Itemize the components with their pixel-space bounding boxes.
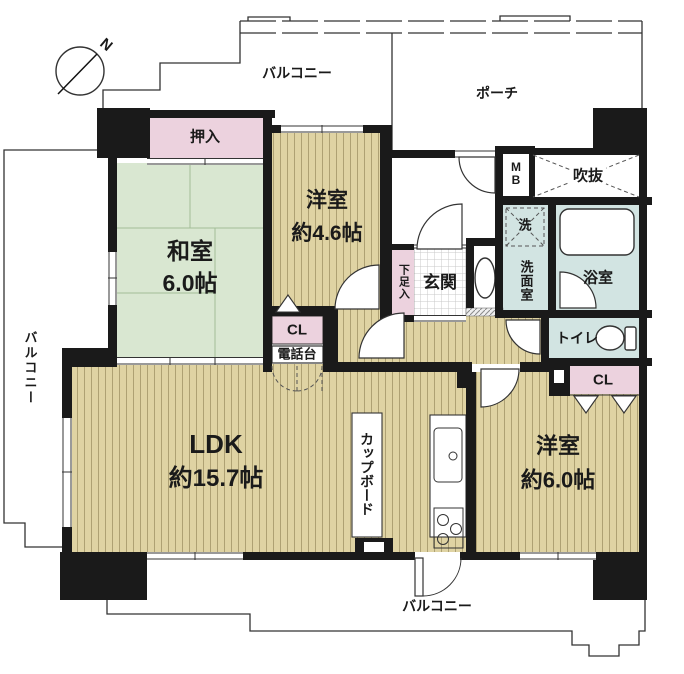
yoshitsu46-name-label: 洋室 <box>306 189 348 213</box>
closet-a-label: CL <box>287 321 307 338</box>
meter-box-label-b: B <box>512 174 521 188</box>
toilet-bowl-icon <box>596 326 624 350</box>
fukinuke-label: 吹抜 <box>570 167 606 184</box>
washer-label: 洗 <box>518 219 531 234</box>
ldk-floor <box>72 364 466 552</box>
ldk-name-label: LDK <box>189 430 242 460</box>
genkan-label: 玄関 <box>423 273 457 293</box>
cupboard-label: カップボード <box>359 432 375 516</box>
ldk-size-label: 約15.7帖 <box>169 465 264 493</box>
bathtub-icon <box>560 209 634 255</box>
window-ldk-left <box>62 418 72 527</box>
oshiire-label: 押入 <box>190 128 220 145</box>
closet-b-label: CL <box>593 371 613 388</box>
balcony-top-label: バルコニー <box>262 65 332 81</box>
toilet-tank-icon <box>625 327 636 350</box>
genkan-lower-step <box>414 315 466 322</box>
compass-icon <box>56 47 104 95</box>
toilet-label: トイレ <box>556 330 598 346</box>
senmen-label: 洗面室 <box>518 260 533 302</box>
hall-door-swing <box>417 204 462 249</box>
porch-label: ポーチ <box>476 85 518 101</box>
bath-label: 浴室 <box>583 269 613 286</box>
balcony-left-label: バルコニー <box>22 331 37 406</box>
window-washitsu-left <box>108 252 117 305</box>
sliding-door-washitsu-ldk <box>117 357 263 365</box>
balcony-door-kitchen <box>415 552 461 596</box>
sliding-door-oshiire <box>147 158 263 165</box>
phone-stand-label: 電話台 <box>277 348 316 363</box>
window-ldk-bottom <box>147 552 243 560</box>
yoshitsu60-size-label: 約6.0帖 <box>521 467 596 492</box>
washitsu-size-label: 6.0帖 <box>163 270 218 296</box>
balcony-bottom-label: バルコニー <box>402 598 472 614</box>
floor-plan: N バルコニー ポーチ バルコニー バルコニー 押入 和室 6.0帖 洋室 約4… <box>0 0 684 674</box>
window-yoshitsu46-top <box>281 125 363 133</box>
window-yoshitsu60-bottom <box>520 552 596 560</box>
basin-icon <box>475 258 495 298</box>
yoshitsu60-name-label: 洋室 <box>536 433 580 458</box>
front-door-swing <box>459 157 495 193</box>
shoe-box-label: 下足入 <box>397 264 410 300</box>
yoshitsu46-size-label: 約4.6帖 <box>291 222 362 246</box>
washitsu-name-label: 和室 <box>167 238 213 264</box>
